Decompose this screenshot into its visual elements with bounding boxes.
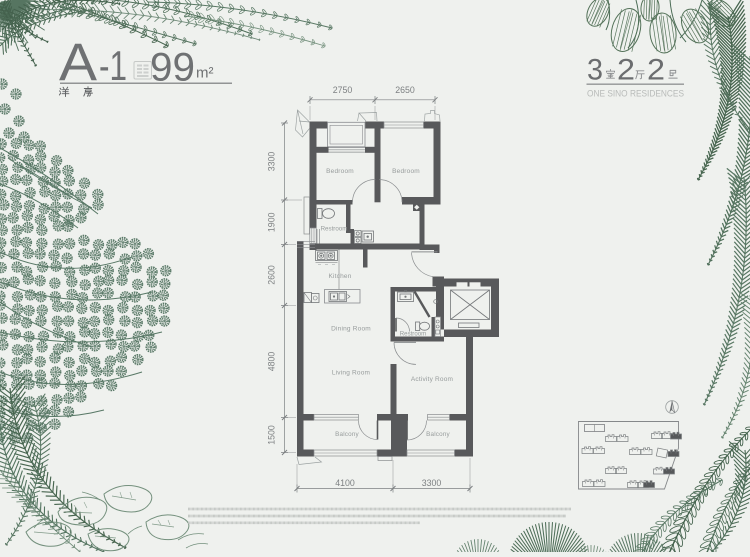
svg-text:Kitchen: Kitchen [328,273,351,280]
svg-text:Balcony: Balcony [335,431,359,438]
svg-text:2650: 2650 [395,85,415,95]
svg-text:Living Room: Living Room [332,369,370,376]
svg-text:1500: 1500 [267,425,277,445]
svg-text:Restroom: Restroom [321,225,348,232]
svg-text:Activity Room: Activity Room [411,376,453,383]
svg-text:ONE SINO RESIDENCES: ONE SINO RESIDENCES [587,89,684,99]
svg-text:-1: -1 [99,42,127,89]
svg-text:2750: 2750 [333,85,353,95]
svg-text:Bedroom: Bedroom [392,168,420,175]
svg-text:Restroom: Restroom [400,330,426,337]
svg-text:2: 2 [617,54,635,87]
svg-text:3300: 3300 [422,478,442,488]
svg-text:3: 3 [587,54,603,87]
svg-text:Bedroom: Bedroom [326,168,354,175]
svg-text:3300: 3300 [267,152,277,172]
svg-text:m²: m² [196,65,214,82]
svg-text:1900: 1900 [267,212,277,232]
svg-text:Dining Room: Dining Room [331,325,371,332]
svg-text:2: 2 [647,54,665,87]
svg-text:4100: 4100 [335,478,355,488]
svg-text:4800: 4800 [267,352,277,372]
svg-text:Balcony: Balcony [426,431,450,438]
svg-text:2600: 2600 [267,265,277,285]
